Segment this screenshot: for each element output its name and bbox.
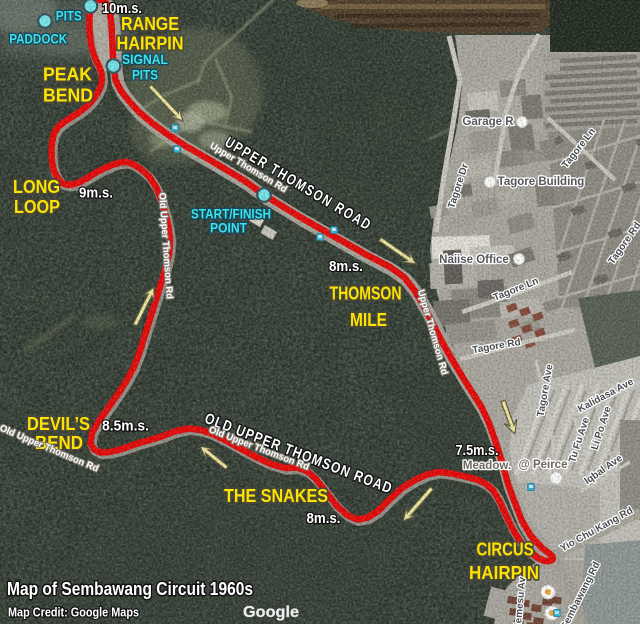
- svg-text:LOOP: LOOP: [14, 197, 60, 217]
- svg-text:7.5m.s.: 7.5m.s.: [456, 442, 499, 459]
- svg-text:@ Peirce: @ Peirce: [519, 459, 568, 471]
- svg-text:Map Credit: Google Maps: Map Credit: Google Maps: [8, 606, 139, 620]
- svg-text:Garage R: Garage R: [462, 116, 514, 128]
- svg-text:Naiise Office: Naiise Office: [439, 254, 509, 266]
- svg-text:THOMSON: THOMSON: [330, 284, 402, 304]
- svg-text:BEND: BEND: [43, 86, 93, 106]
- svg-text:PITS: PITS: [132, 68, 158, 83]
- svg-text:PADDOCK: PADDOCK: [9, 32, 67, 47]
- svg-text:MILE: MILE: [350, 310, 387, 330]
- svg-text:START/FINISH: START/FINISH: [191, 207, 271, 222]
- svg-text:Tagore Building: Tagore Building: [498, 176, 585, 188]
- svg-text:8.5m.s.: 8.5m.s.: [102, 418, 149, 435]
- svg-text:HAIRPIN: HAIRPIN: [117, 34, 184, 54]
- svg-text:PITS: PITS: [56, 9, 82, 24]
- svg-text:THE SNAKES: THE SNAKES: [224, 486, 328, 506]
- svg-text:Map of Sembawang Circuit 1960s: Map of Sembawang Circuit 1960s: [7, 579, 253, 599]
- svg-text:POINT: POINT: [210, 221, 248, 236]
- svg-text:PEAK: PEAK: [43, 65, 92, 85]
- svg-text:10m.s.: 10m.s.: [102, 0, 142, 17]
- svg-text:LONG: LONG: [13, 177, 60, 197]
- svg-text:9m.s.: 9m.s.: [79, 185, 113, 202]
- svg-text:HAIRPIN: HAIRPIN: [469, 563, 539, 583]
- svg-text:8m.s.: 8m.s.: [307, 510, 341, 527]
- svg-text:CIRCUS: CIRCUS: [477, 540, 534, 560]
- svg-text:Meadow.: Meadow.: [463, 460, 511, 472]
- svg-text:8m.s.: 8m.s.: [329, 258, 363, 275]
- svg-text:RANGE: RANGE: [121, 14, 179, 34]
- svg-text:SIGNAL: SIGNAL: [122, 52, 168, 67]
- svg-text:Google: Google: [243, 604, 299, 621]
- svg-text:DEVIL’S: DEVIL’S: [27, 414, 90, 434]
